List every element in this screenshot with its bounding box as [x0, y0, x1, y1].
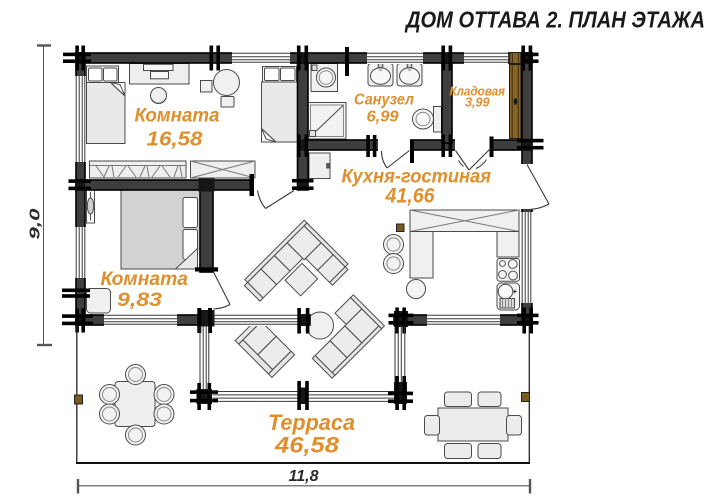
svg-text:9,83: 9,83	[117, 289, 162, 311]
svg-text:Санузел: Санузел	[354, 92, 414, 109]
svg-text:11,8: 11,8	[289, 468, 319, 485]
svg-text:3,99: 3,99	[465, 96, 490, 110]
svg-text:ДОМ ОТТАВА 2. ПЛАН ЭТАЖА: ДОМ ОТТАВА 2. ПЛАН ЭТАЖА	[404, 7, 705, 33]
svg-text:9,0: 9,0	[27, 208, 44, 240]
svg-text:Комната: Комната	[135, 106, 220, 127]
svg-text:41,66: 41,66	[385, 184, 436, 208]
svg-text:6,99: 6,99	[367, 109, 399, 126]
svg-text:16,58: 16,58	[147, 127, 204, 150]
svg-text:Комната: Комната	[101, 269, 189, 290]
svg-text:46,58: 46,58	[274, 433, 340, 458]
svg-text:Терраса: Терраса	[268, 410, 355, 435]
